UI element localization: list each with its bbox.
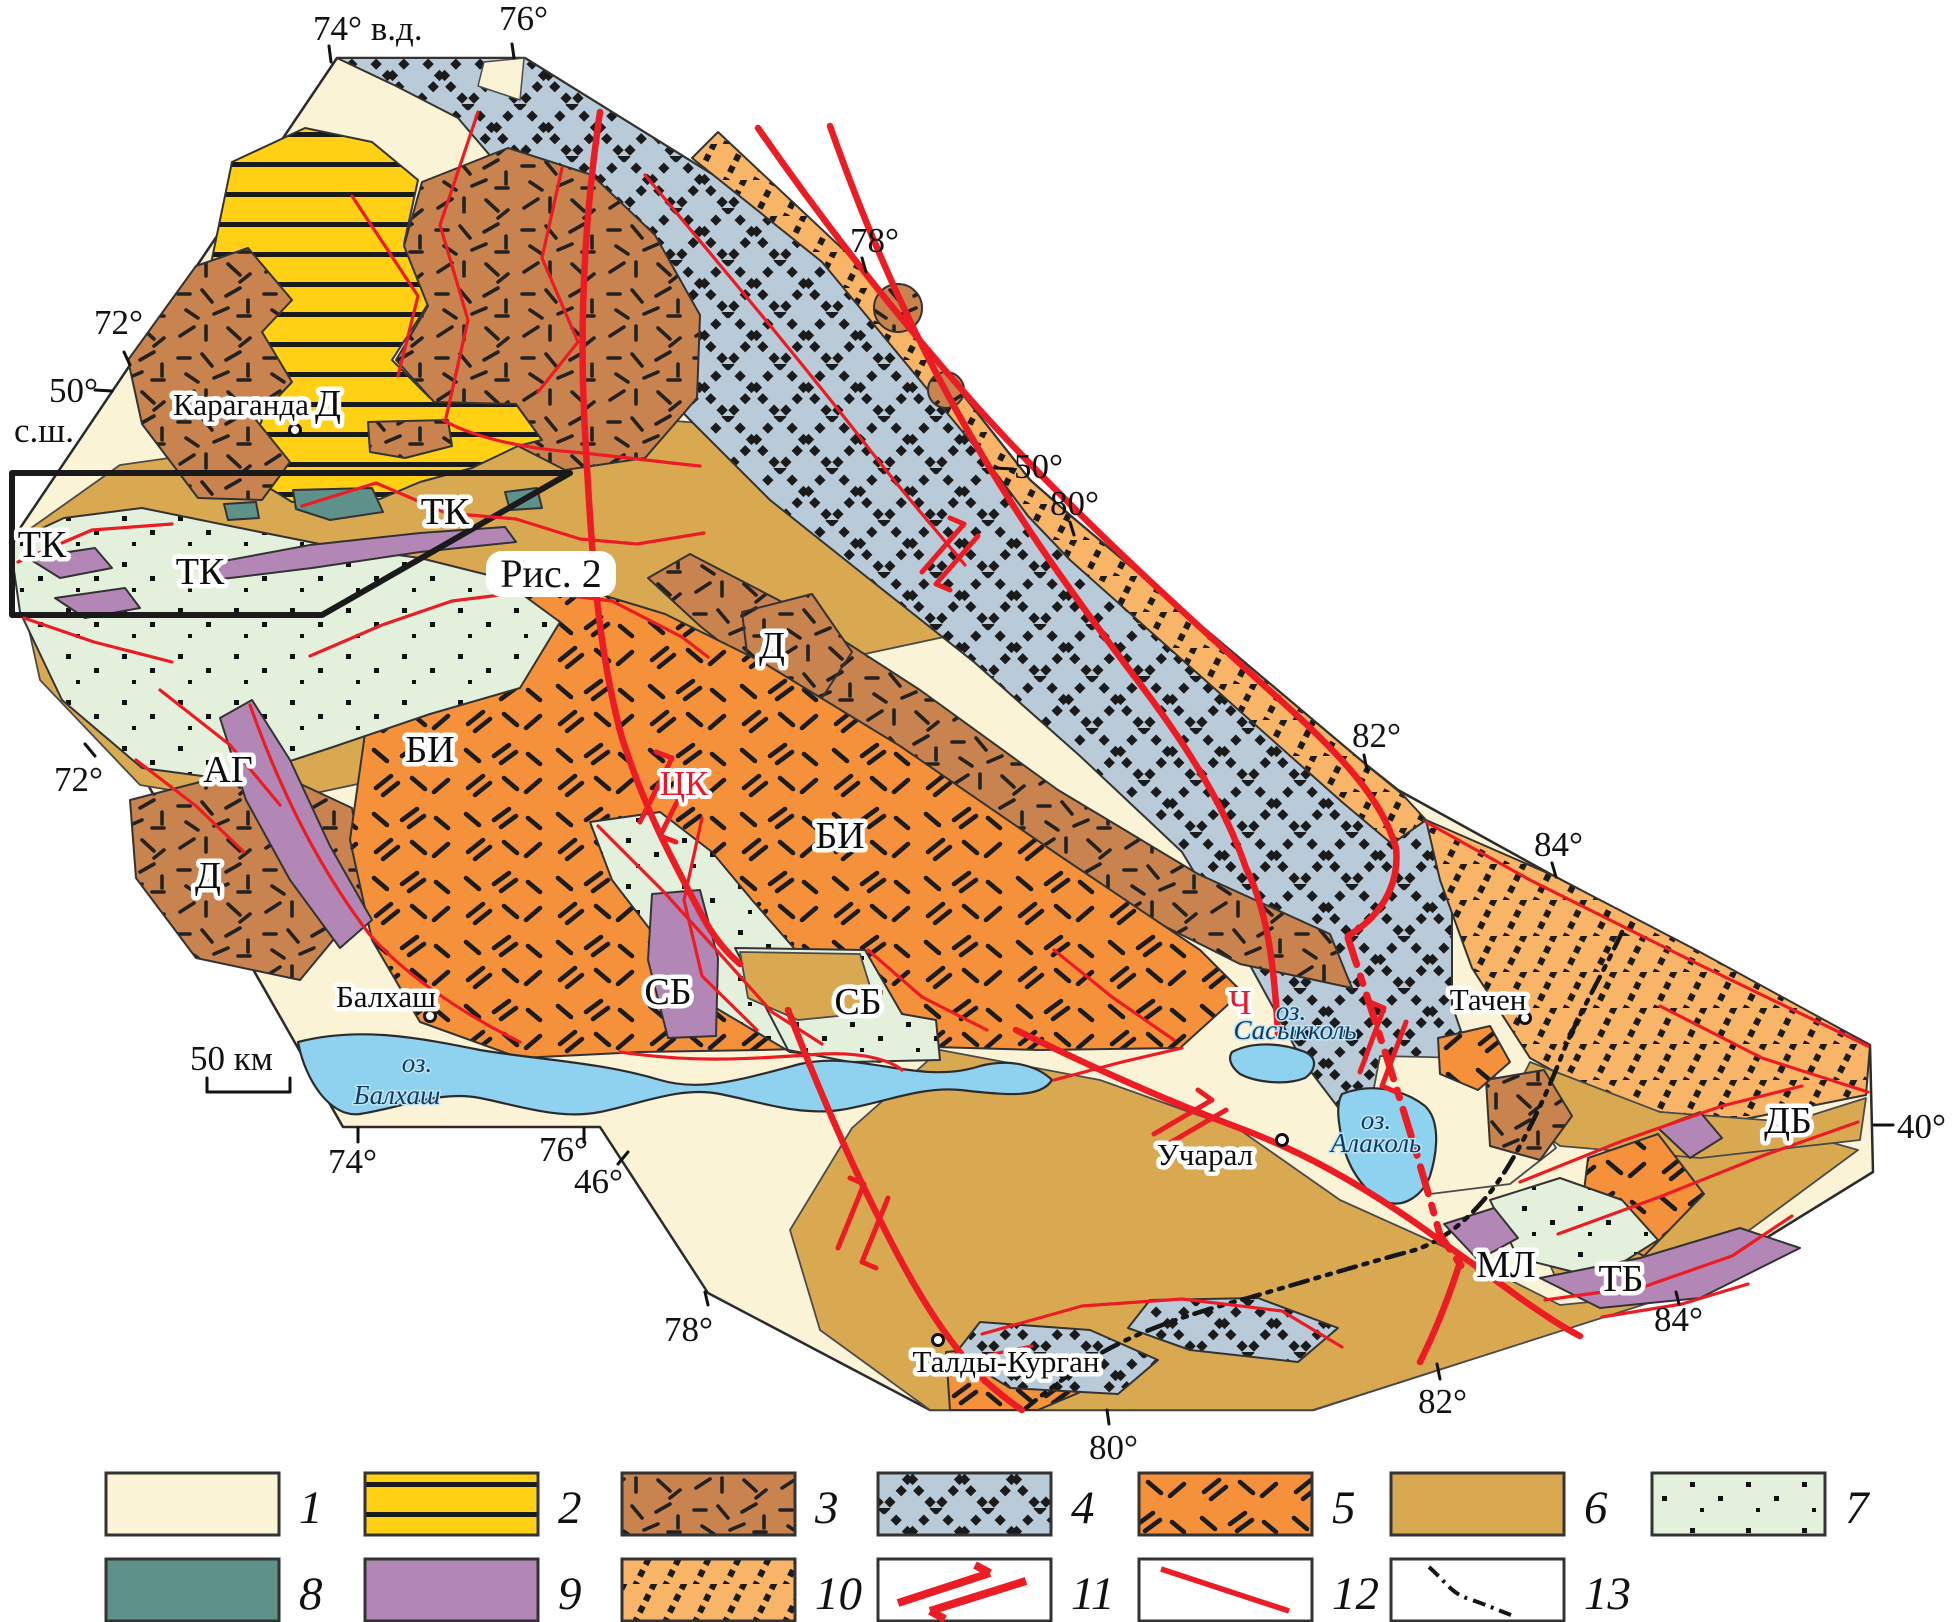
fault-label: ЦК — [660, 764, 709, 803]
map-canvas: 74° в.д.76°78°50°80°82°84°40°84°82°80°78… — [0, 0, 1952, 1622]
legend-item-13: 13 — [1391, 1559, 1631, 1621]
legend-swatch-mint-dots — [1652, 1473, 1825, 1535]
fault-label: Ч — [1229, 983, 1252, 1022]
legend-item-11: 11 — [878, 1559, 1115, 1621]
coordinate-label: с.ш. — [14, 411, 74, 450]
city-label: Талды-Курган — [913, 1344, 1100, 1379]
legend-number: 1 — [299, 1482, 323, 1534]
region-label: СБ — [644, 971, 691, 1013]
legend-item-1: 1 — [106, 1473, 323, 1535]
lake-name: Балхаш — [353, 1080, 441, 1110]
coordinate-label: 84° — [1534, 825, 1583, 864]
legend-item-12: 12 — [1139, 1559, 1379, 1621]
legend-number: 9 — [558, 1568, 582, 1620]
legend-swatch-orange-hachure — [1139, 1473, 1312, 1535]
legend-number: 5 — [1332, 1482, 1356, 1534]
legend-item-9: 9 — [365, 1559, 582, 1621]
legend-number: 2 — [558, 1482, 582, 1534]
region-label: ТК — [18, 524, 67, 566]
legend: 12345678910111213 — [106, 1473, 1871, 1621]
region-label: Д — [315, 383, 341, 425]
legend-number: 13 — [1584, 1568, 1631, 1620]
coordinate-label: 74° в.д. — [313, 9, 423, 48]
legend-item-7: 7 — [1652, 1473, 1871, 1535]
legend-item-10: 10 — [622, 1559, 862, 1621]
region-label: БИ — [815, 815, 864, 857]
legend-item-3: 3 — [622, 1473, 839, 1535]
lake-name: Сасыкколь — [1233, 1015, 1356, 1045]
coordinate-label: 72° — [94, 303, 143, 342]
lake-name: Алаколь — [1329, 1128, 1422, 1158]
legend-swatch-cream — [106, 1473, 279, 1535]
legend-number: 7 — [1845, 1482, 1871, 1534]
region-label: ДБ — [1764, 1100, 1812, 1142]
region-label: ТБ — [1598, 1258, 1643, 1300]
city-label: Тачен — [1450, 982, 1527, 1017]
legend-swatch-boundary-line — [1391, 1559, 1564, 1621]
coordinate-label: 74° — [328, 1142, 377, 1181]
city-marker — [1277, 1135, 1288, 1146]
legend-number: 10 — [815, 1568, 862, 1620]
coordinate-label: 80° — [1089, 1428, 1138, 1467]
legend-number: 3 — [814, 1482, 839, 1534]
geological-map-figure: 74° в.д.76°78°50°80°82°84°40°84°82°80°78… — [0, 0, 1952, 1622]
coordinate-label: 78° — [664, 1310, 713, 1349]
coordinate-label: 78° — [850, 221, 899, 260]
legend-swatch-tan — [1391, 1473, 1564, 1535]
scale-label: 50 км — [190, 1039, 273, 1078]
coordinate-label: 76° — [499, 0, 548, 38]
coordinate-label: 82° — [1352, 716, 1401, 755]
lake-name: оз. — [402, 1048, 432, 1078]
legend-number: 8 — [299, 1568, 323, 1620]
coordinate-label: 50° — [49, 371, 98, 410]
region-label: АГ — [203, 749, 252, 791]
region-label: ТК — [176, 551, 225, 593]
region-label: Д — [759, 625, 785, 667]
scale-bar — [207, 1078, 290, 1092]
legend-item-2: 2 — [365, 1473, 582, 1535]
legend-item-5: 5 — [1139, 1473, 1356, 1535]
legend-item-6: 6 — [1391, 1473, 1608, 1535]
coordinate-label: 46° — [574, 1162, 623, 1201]
region-label: СБ — [834, 981, 881, 1023]
region-label: МЛ — [1476, 1244, 1536, 1286]
coordinate-label: 72° — [54, 760, 103, 799]
coordinate-label: 82° — [1418, 1382, 1467, 1421]
legend-number: 12 — [1332, 1568, 1379, 1620]
city-label: Балхаш — [336, 979, 436, 1014]
city-label: Учарал — [1157, 1137, 1253, 1172]
legend-item-8: 8 — [106, 1559, 323, 1621]
region-label: БИ — [405, 729, 454, 771]
region-label: ТК — [421, 491, 470, 533]
legend-swatch-purple — [365, 1559, 538, 1621]
city-marker — [290, 425, 301, 436]
legend-swatch-teal — [106, 1559, 279, 1621]
region-label: Д — [195, 855, 221, 897]
region-teal-b — [224, 502, 259, 520]
legend-swatch-strike-slip — [878, 1559, 1051, 1621]
legend-swatch-yellow-lines — [365, 1473, 538, 1535]
city-label: Караганда — [173, 387, 309, 422]
legend-item-4: 4 — [878, 1473, 1095, 1535]
coordinate-label: 40° — [1897, 1107, 1946, 1146]
legend-number: 4 — [1071, 1482, 1095, 1534]
coordinate-label: 50° — [1014, 447, 1063, 486]
legend-swatch-brown-hachure — [622, 1473, 795, 1535]
legend-swatch-orange-stripes — [622, 1559, 795, 1621]
coordinate-label: 84° — [1654, 1300, 1703, 1339]
legend-number: 6 — [1584, 1482, 1608, 1534]
coordinate-label: 80° — [1050, 484, 1099, 523]
legend-swatch-blue-check — [878, 1473, 1051, 1535]
inset-label: Рис. 2 — [500, 551, 601, 596]
legend-number: 11 — [1071, 1568, 1115, 1620]
